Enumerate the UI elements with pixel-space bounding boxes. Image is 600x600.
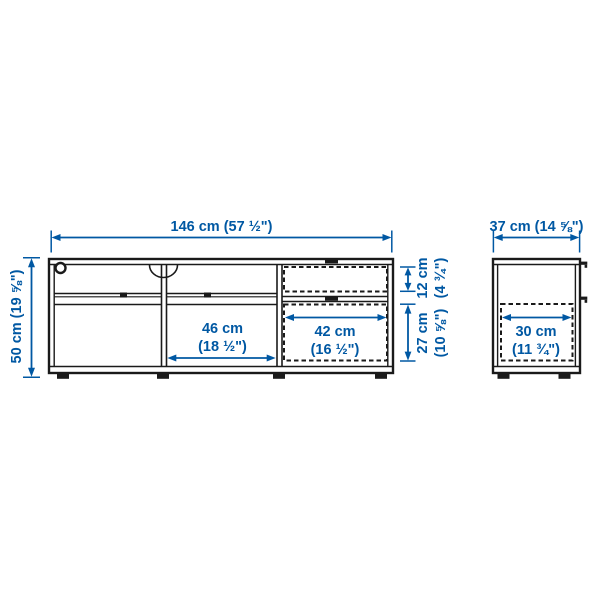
top-drawer-height-inches: (4 ¾"): [432, 252, 450, 304]
inner-depth-inches: (11 ¾"): [476, 341, 596, 359]
cable-hole-circle-icon: [56, 263, 66, 273]
top-drawer-height-cm: 12 cm: [414, 252, 432, 304]
inner-depth-dimension-label: 30 cm (11 ¾"): [476, 323, 596, 359]
foot: [273, 374, 285, 379]
top-drawer-height-dimension-label: 12 cm (4 ¾"): [414, 252, 450, 304]
width-dimension-label: 146 cm (57 ½"): [121, 219, 322, 236]
wall-anchor-hook-icon: [581, 262, 588, 268]
drawer-width-inches: (16 ½"): [275, 341, 395, 359]
drawer-width-dimension-label: 42 cm (16 ½"): [275, 323, 395, 359]
drawer-width-cm: 42 cm: [275, 323, 395, 341]
shelf-pin-dot: [120, 293, 127, 298]
drawer-stop-tab: [325, 297, 338, 301]
shelf-width-dimension-label: 46 cm (18 ½"): [162, 320, 283, 356]
wall-anchor-hook-icon: [581, 297, 588, 303]
foot: [157, 374, 169, 379]
height-dimension-label: 50 cm (19 ⅝"): [9, 247, 26, 386]
bottom-drawer-height-dimension-label: 27 cm (10 ⅝"): [414, 303, 450, 363]
front-view-drawing: [49, 259, 393, 379]
furniture-dimension-diagram: 146 cm (57 ½") 50 cm (19 ⅝") 37 cm (14 ⅝…: [0, 0, 600, 600]
foot: [498, 374, 510, 379]
drawer-stop-tab: [325, 260, 338, 264]
diagram-canvas: [0, 0, 600, 600]
front-view-feet: [57, 374, 387, 379]
inner-depth-cm: 30 cm: [476, 323, 596, 341]
foot: [375, 374, 387, 379]
shelf-width-inches: (18 ½"): [162, 338, 283, 356]
shelf-pin-dot: [204, 293, 211, 298]
foot: [559, 374, 571, 379]
shelf-width-cm: 46 cm: [162, 320, 283, 338]
bottom-drawer-height-inches: (10 ⅝"): [432, 303, 450, 363]
foot: [57, 374, 69, 379]
depth-dimension-label: 37 cm (14 ⅝"): [436, 219, 600, 236]
bottom-drawer-height-cm: 27 cm: [414, 303, 432, 363]
side-view-feet: [498, 374, 571, 379]
